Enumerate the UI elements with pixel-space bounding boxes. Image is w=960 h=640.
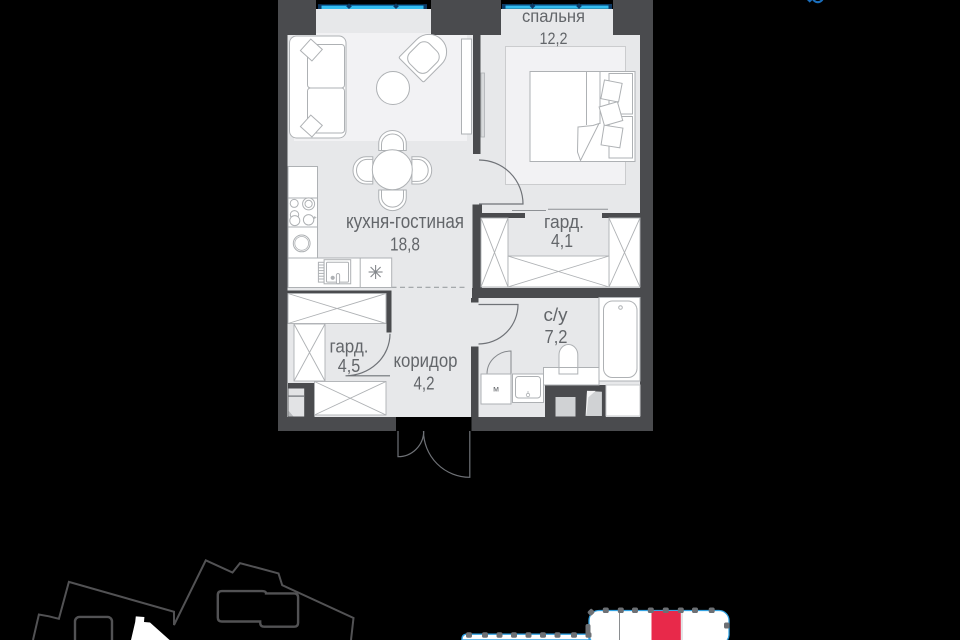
svg-text:7,2: 7,2 <box>545 327 568 347</box>
svg-text:12,2: 12,2 <box>540 29 568 48</box>
svg-text:коридор: коридор <box>394 351 458 372</box>
svg-text:4,5: 4,5 <box>338 356 361 376</box>
svg-text:спальня: спальня <box>522 6 585 26</box>
svg-text:м: м <box>493 384 499 394</box>
svg-text:кухня-гостиная: кухня-гостиная <box>346 211 464 233</box>
svg-text:гард.: гард. <box>330 337 369 357</box>
svg-text:с/у: с/у <box>544 305 568 325</box>
svg-text:4,2: 4,2 <box>414 374 435 394</box>
svg-text:гард.: гард. <box>544 212 584 232</box>
svg-text:4,1: 4,1 <box>551 231 573 251</box>
svg-text:18,8: 18,8 <box>390 234 420 255</box>
